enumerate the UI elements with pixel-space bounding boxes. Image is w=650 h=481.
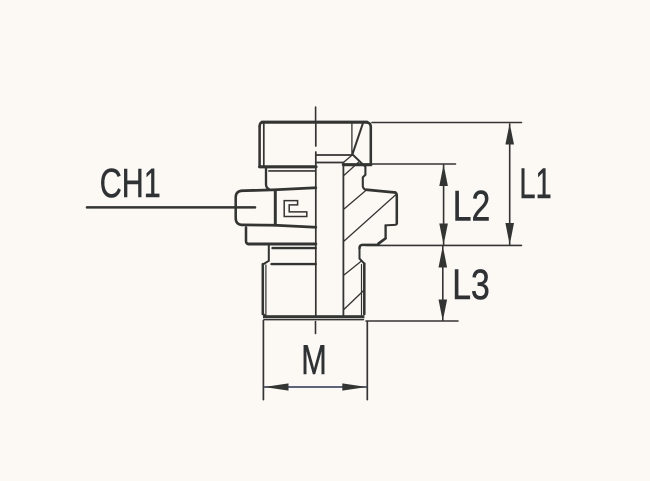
svg-text:CH1: CH1 bbox=[100, 160, 161, 206]
svg-text:L3: L3 bbox=[452, 262, 490, 309]
svg-text:M: M bbox=[301, 336, 327, 383]
svg-text:L1: L1 bbox=[519, 161, 552, 208]
svg-text:L2: L2 bbox=[453, 184, 491, 231]
